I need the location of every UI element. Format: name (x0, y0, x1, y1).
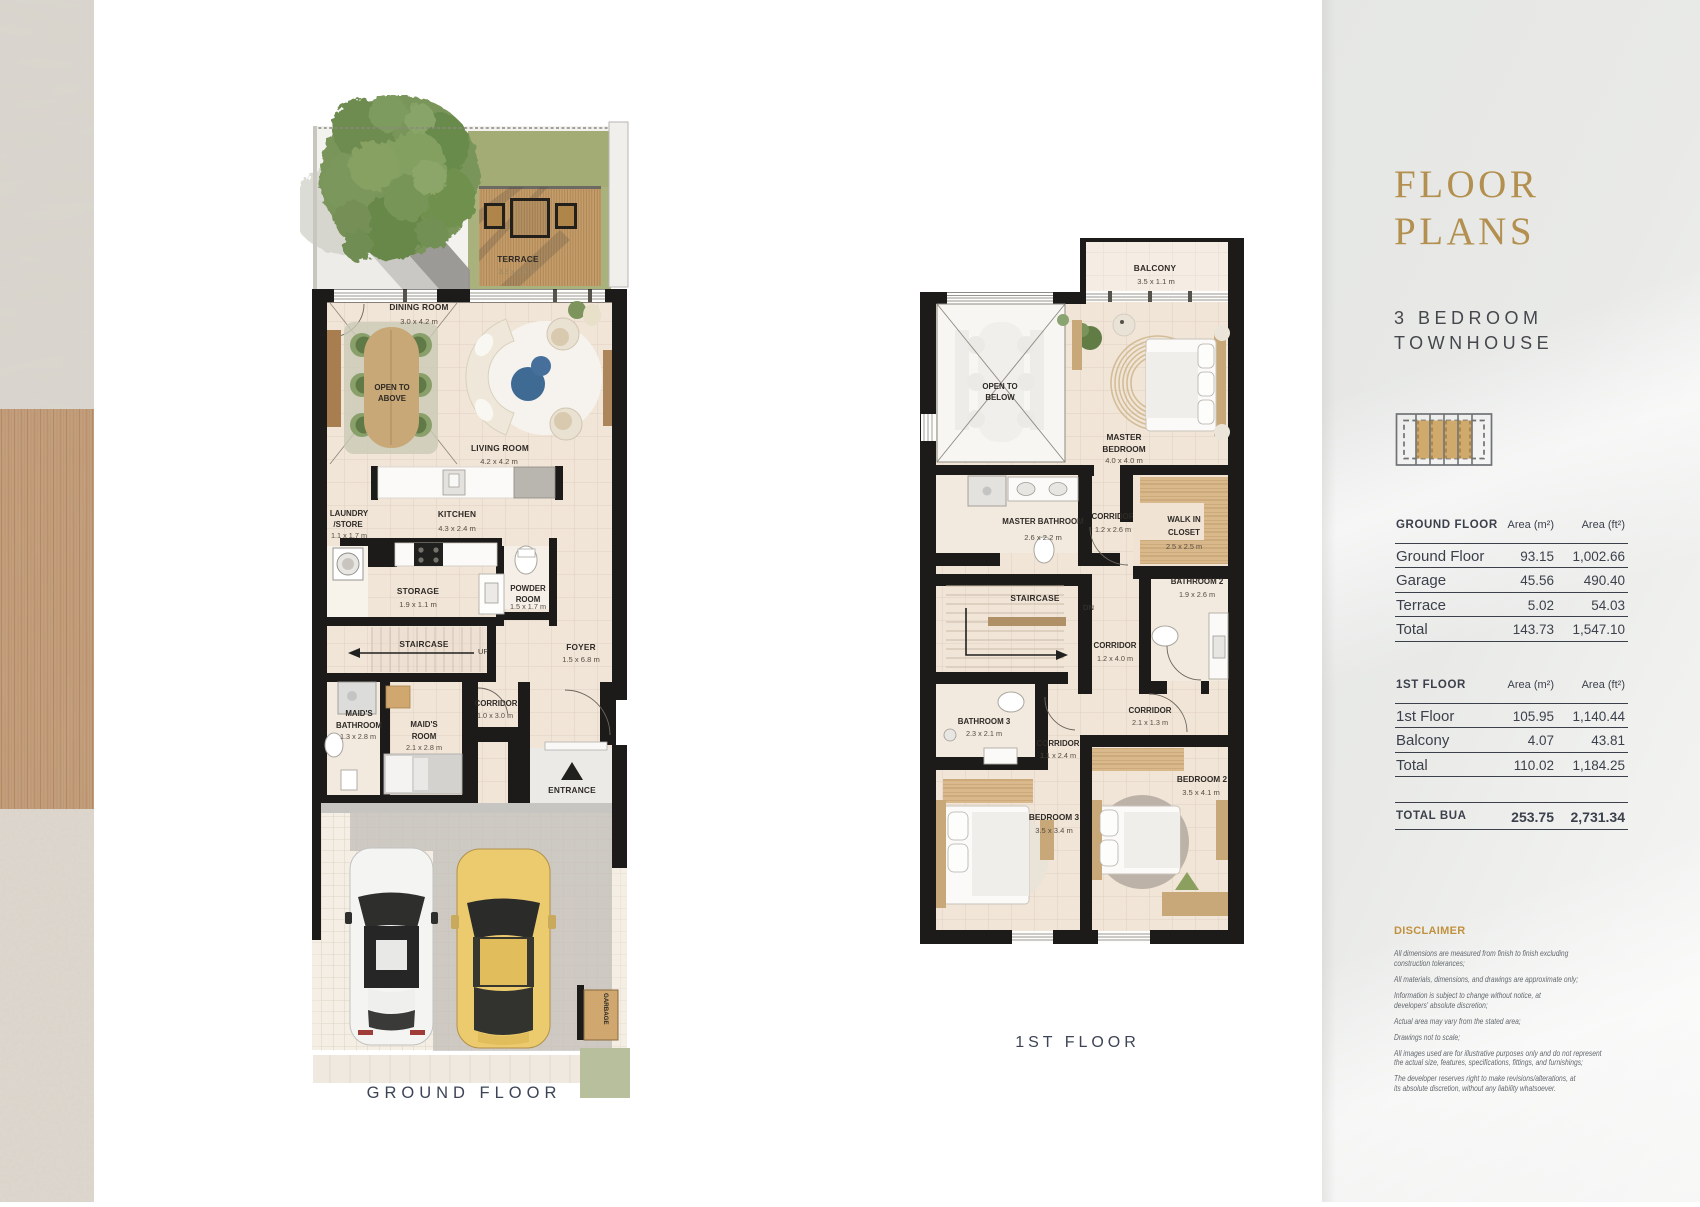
svg-text:ABOVE: ABOVE (378, 394, 406, 403)
svg-text:MASTER: MASTER (1106, 432, 1141, 442)
svg-text:DINING ROOM: DINING ROOM (389, 302, 448, 312)
svg-text:1.2 x 4.0 m: 1.2 x 4.0 m (1097, 654, 1133, 663)
svg-text:CORRIDOR: CORRIDOR (1037, 739, 1080, 748)
svg-text:3.0 x 4.2 m: 3.0 x 4.2 m (400, 317, 438, 326)
svg-text:BELOW: BELOW (985, 393, 1015, 402)
svg-text:2.1 x 1.3 m: 2.1 x 1.3 m (1132, 718, 1168, 727)
svg-text:CORRIDOR: CORRIDOR (1129, 706, 1172, 715)
svg-text:CORRIDOR: CORRIDOR (475, 699, 518, 708)
svg-text:3.5 x 1.1 m: 3.5 x 1.1 m (1137, 277, 1175, 286)
svg-text:MAID'S: MAID'S (410, 720, 437, 729)
svg-text:2.5 x 2.5 m: 2.5 x 2.5 m (1166, 542, 1202, 551)
svg-text:4.3 x 2.4 m: 4.3 x 2.4 m (438, 524, 476, 533)
svg-text:OPEN TO: OPEN TO (374, 383, 409, 392)
svg-text:ROOM: ROOM (412, 732, 437, 741)
svg-text:MAID'S: MAID'S (345, 709, 372, 718)
svg-text:BALCONY: BALCONY (1134, 263, 1177, 273)
svg-text:UP: UP (478, 647, 489, 656)
svg-text:1.1 x 2.4 m: 1.1 x 2.4 m (1040, 751, 1076, 760)
svg-text:1.2 x 2.6 m: 1.2 x 2.6 m (1095, 525, 1131, 534)
svg-text:GARBAGE: GARBAGE (602, 993, 609, 1025)
svg-text:1.5 x 1.7 m: 1.5 x 1.7 m (510, 602, 546, 611)
svg-text:BATHROOM: BATHROOM (336, 721, 382, 730)
svg-text:LIVING ROOM: LIVING ROOM (471, 443, 529, 453)
svg-text:/STORE: /STORE (333, 520, 362, 529)
svg-text:BATHROOM 2: BATHROOM 2 (1171, 577, 1224, 586)
svg-text:1.9 x 1.1 m: 1.9 x 1.1 m (399, 600, 437, 609)
svg-text:ENTRANCE: ENTRANCE (548, 785, 596, 795)
svg-text:2.6 x 2.2 m: 2.6 x 2.2 m (1024, 533, 1062, 542)
svg-text:LAUNDRY: LAUNDRY (330, 509, 369, 518)
svg-text:3.3 x 2.6 m: 3.3 x 2.6 m (498, 267, 536, 276)
svg-text:CORRIDOR: CORRIDOR (1092, 512, 1135, 521)
svg-text:2.1 x 2.8 m: 2.1 x 2.8 m (406, 743, 442, 752)
svg-text:OPEN TO: OPEN TO (982, 382, 1017, 391)
svg-text:CORRIDOR: CORRIDOR (1094, 641, 1137, 650)
svg-text:KITCHEN: KITCHEN (438, 509, 476, 519)
svg-text:3.5 x 4.1 m: 3.5 x 4.1 m (1182, 788, 1220, 797)
svg-text:BEDROOM 2: BEDROOM 2 (1177, 774, 1228, 784)
svg-text:MASTER BATHROOM: MASTER BATHROOM (1002, 517, 1084, 526)
svg-text:BEDROOM: BEDROOM (1102, 444, 1145, 454)
svg-text:TERRACE: TERRACE (497, 254, 539, 264)
svg-text:1.1 x 1.7 m: 1.1 x 1.7 m (331, 531, 367, 540)
svg-text:STAIRCASE: STAIRCASE (1010, 593, 1059, 603)
svg-text:1.9 x 2.6 m: 1.9 x 2.6 m (1179, 590, 1215, 599)
svg-text:BATHROOM 3: BATHROOM 3 (958, 717, 1011, 726)
svg-text:4.2 x 4.2 m: 4.2 x 4.2 m (480, 457, 518, 466)
svg-text:CLOSET: CLOSET (1168, 528, 1200, 537)
svg-text:DN: DN (1083, 603, 1094, 612)
svg-text:2.3 x 2.1 m: 2.3 x 2.1 m (966, 729, 1002, 738)
svg-text:FOYER: FOYER (566, 642, 596, 652)
svg-text:STAIRCASE: STAIRCASE (399, 639, 448, 649)
svg-text:4.0 x 4.0 m: 4.0 x 4.0 m (1105, 456, 1143, 465)
svg-text:1.3 x 2.8 m: 1.3 x 2.8 m (340, 732, 376, 741)
svg-text:BEDROOM 3: BEDROOM 3 (1029, 812, 1080, 822)
svg-text:1.5 x 6.8 m: 1.5 x 6.8 m (562, 655, 600, 664)
svg-text:WALK IN: WALK IN (1167, 515, 1201, 524)
svg-text:3.5 x 3.4 m: 3.5 x 3.4 m (1035, 826, 1073, 835)
svg-text:STORAGE: STORAGE (397, 586, 440, 596)
svg-text:POWDER: POWDER (510, 584, 546, 593)
